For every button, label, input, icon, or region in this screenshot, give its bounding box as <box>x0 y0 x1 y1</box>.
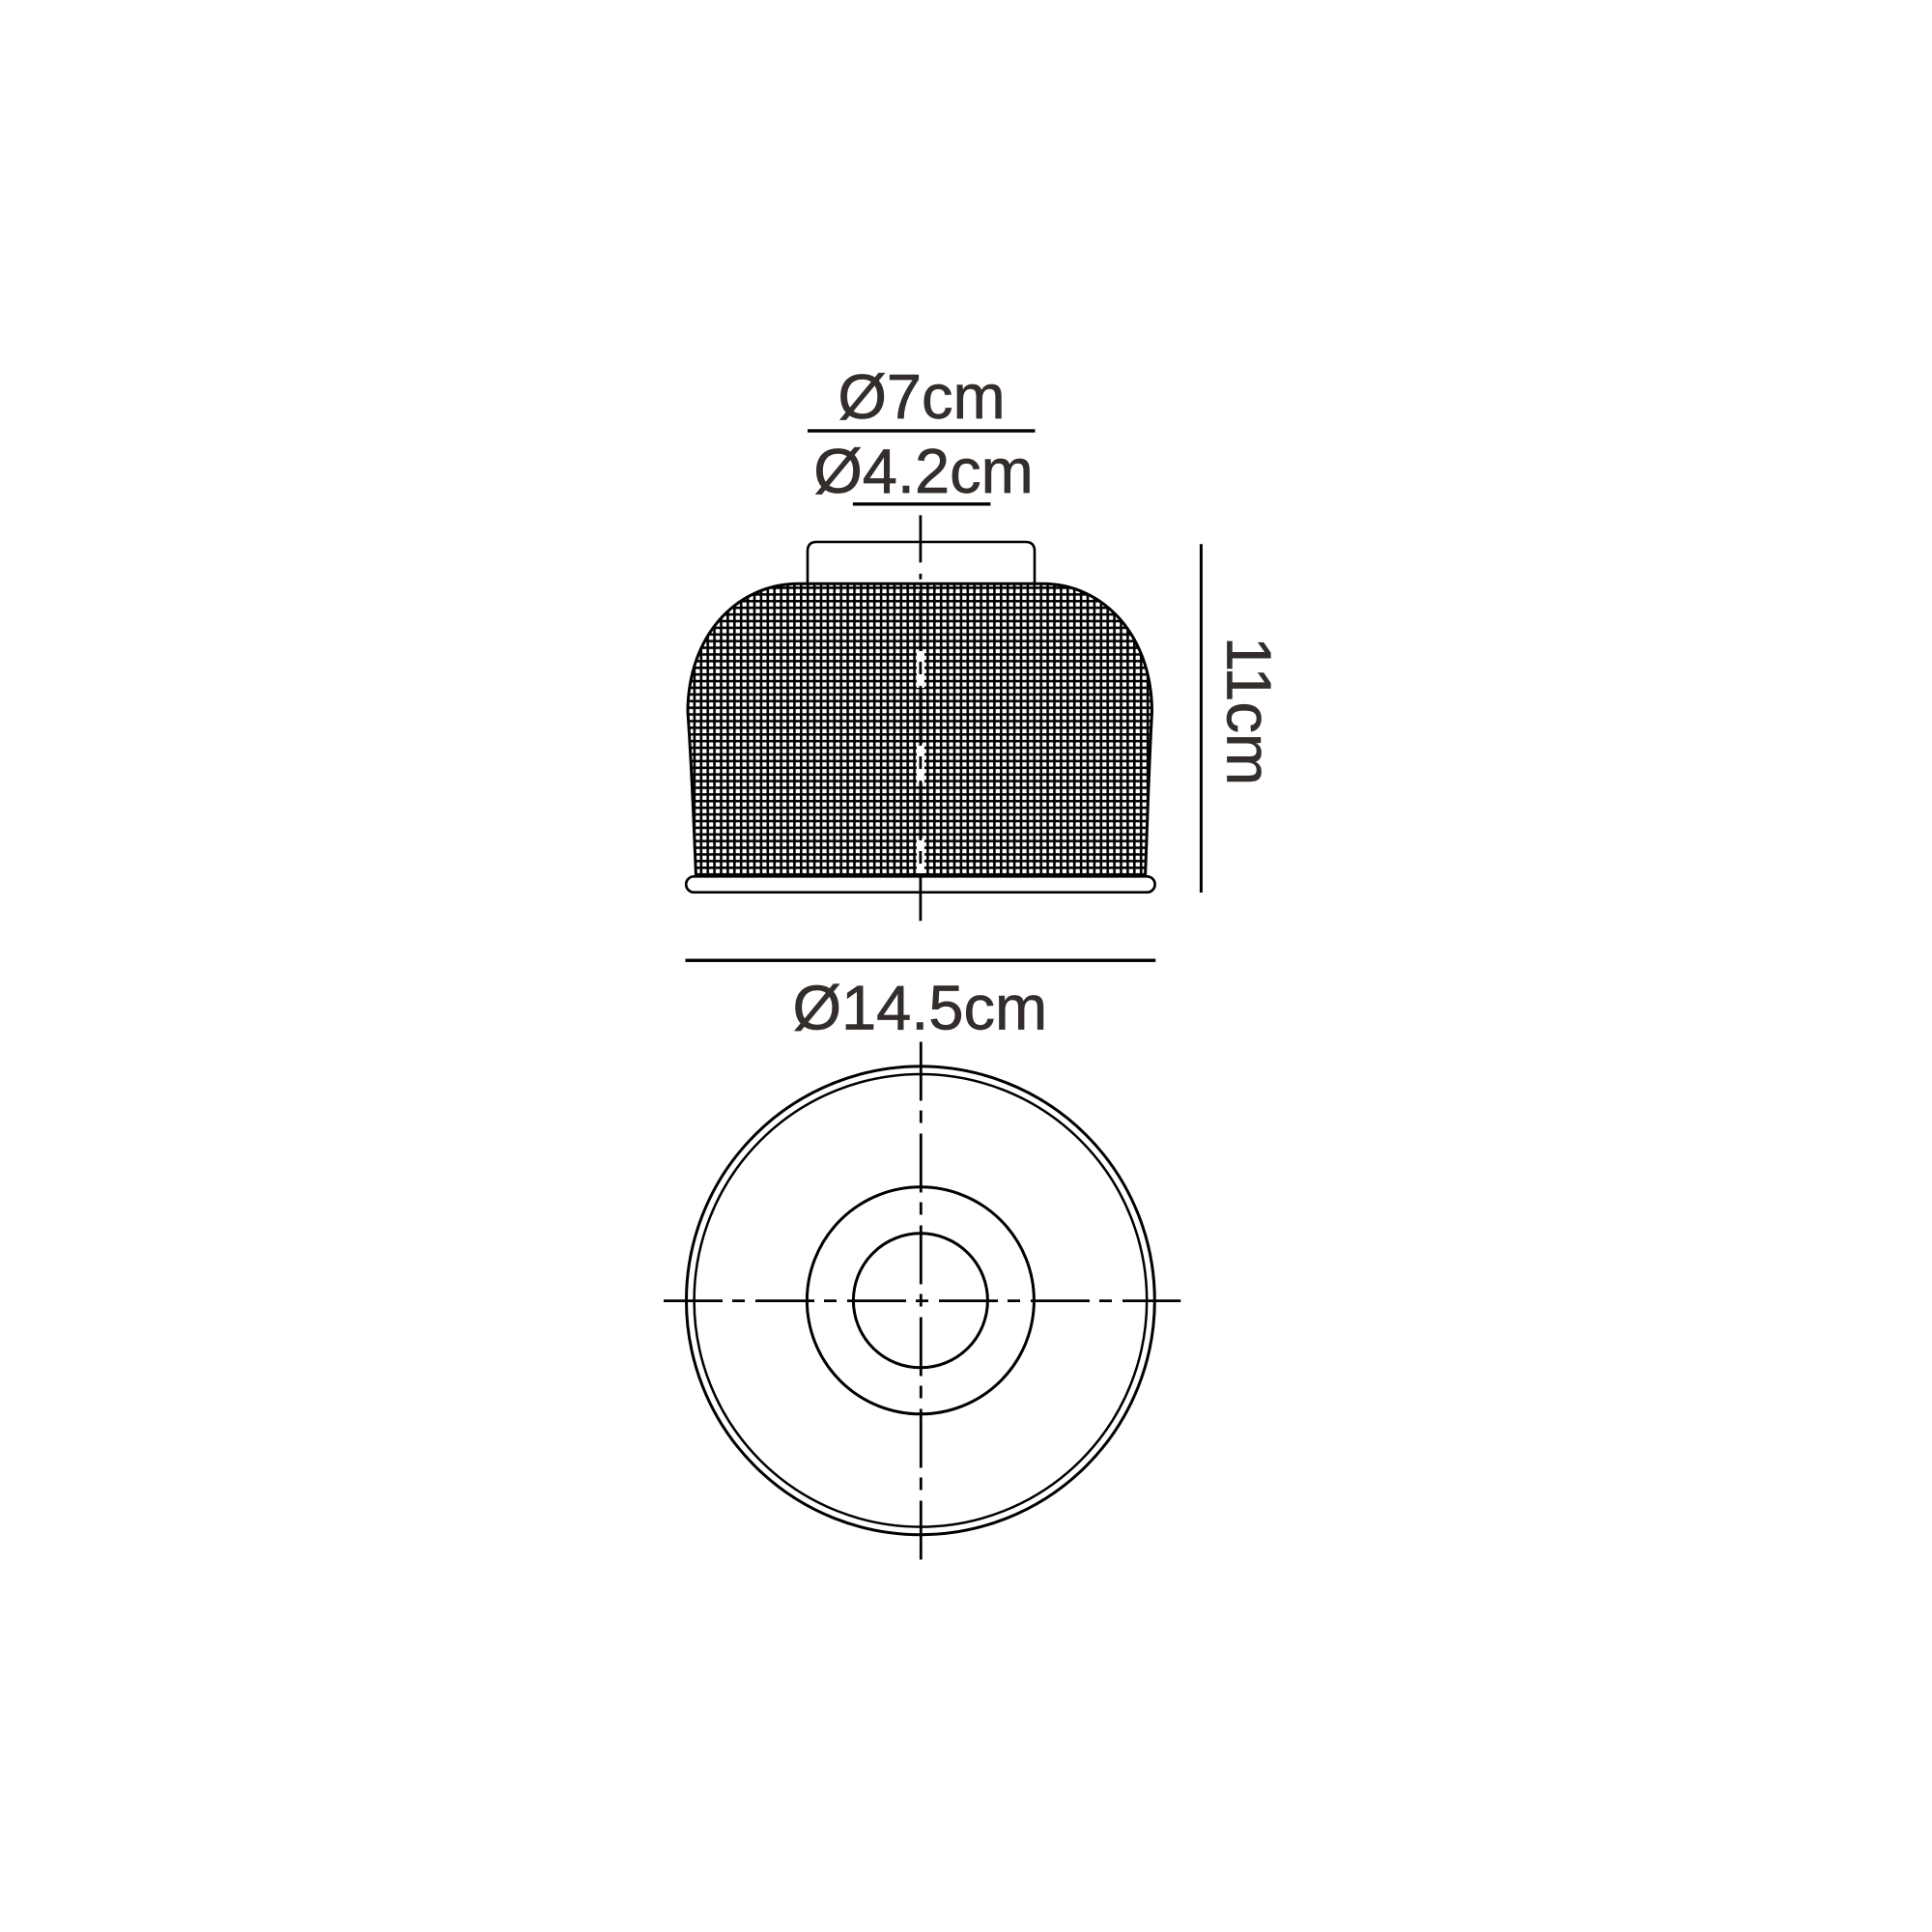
svg-text:Ø4.2cm: Ø4.2cm <box>813 436 1034 506</box>
svg-text:11cm: 11cm <box>1214 637 1285 785</box>
svg-text:Ø7cm: Ø7cm <box>838 361 1005 432</box>
svg-text:Ø14.5cm: Ø14.5cm <box>792 972 1047 1042</box>
